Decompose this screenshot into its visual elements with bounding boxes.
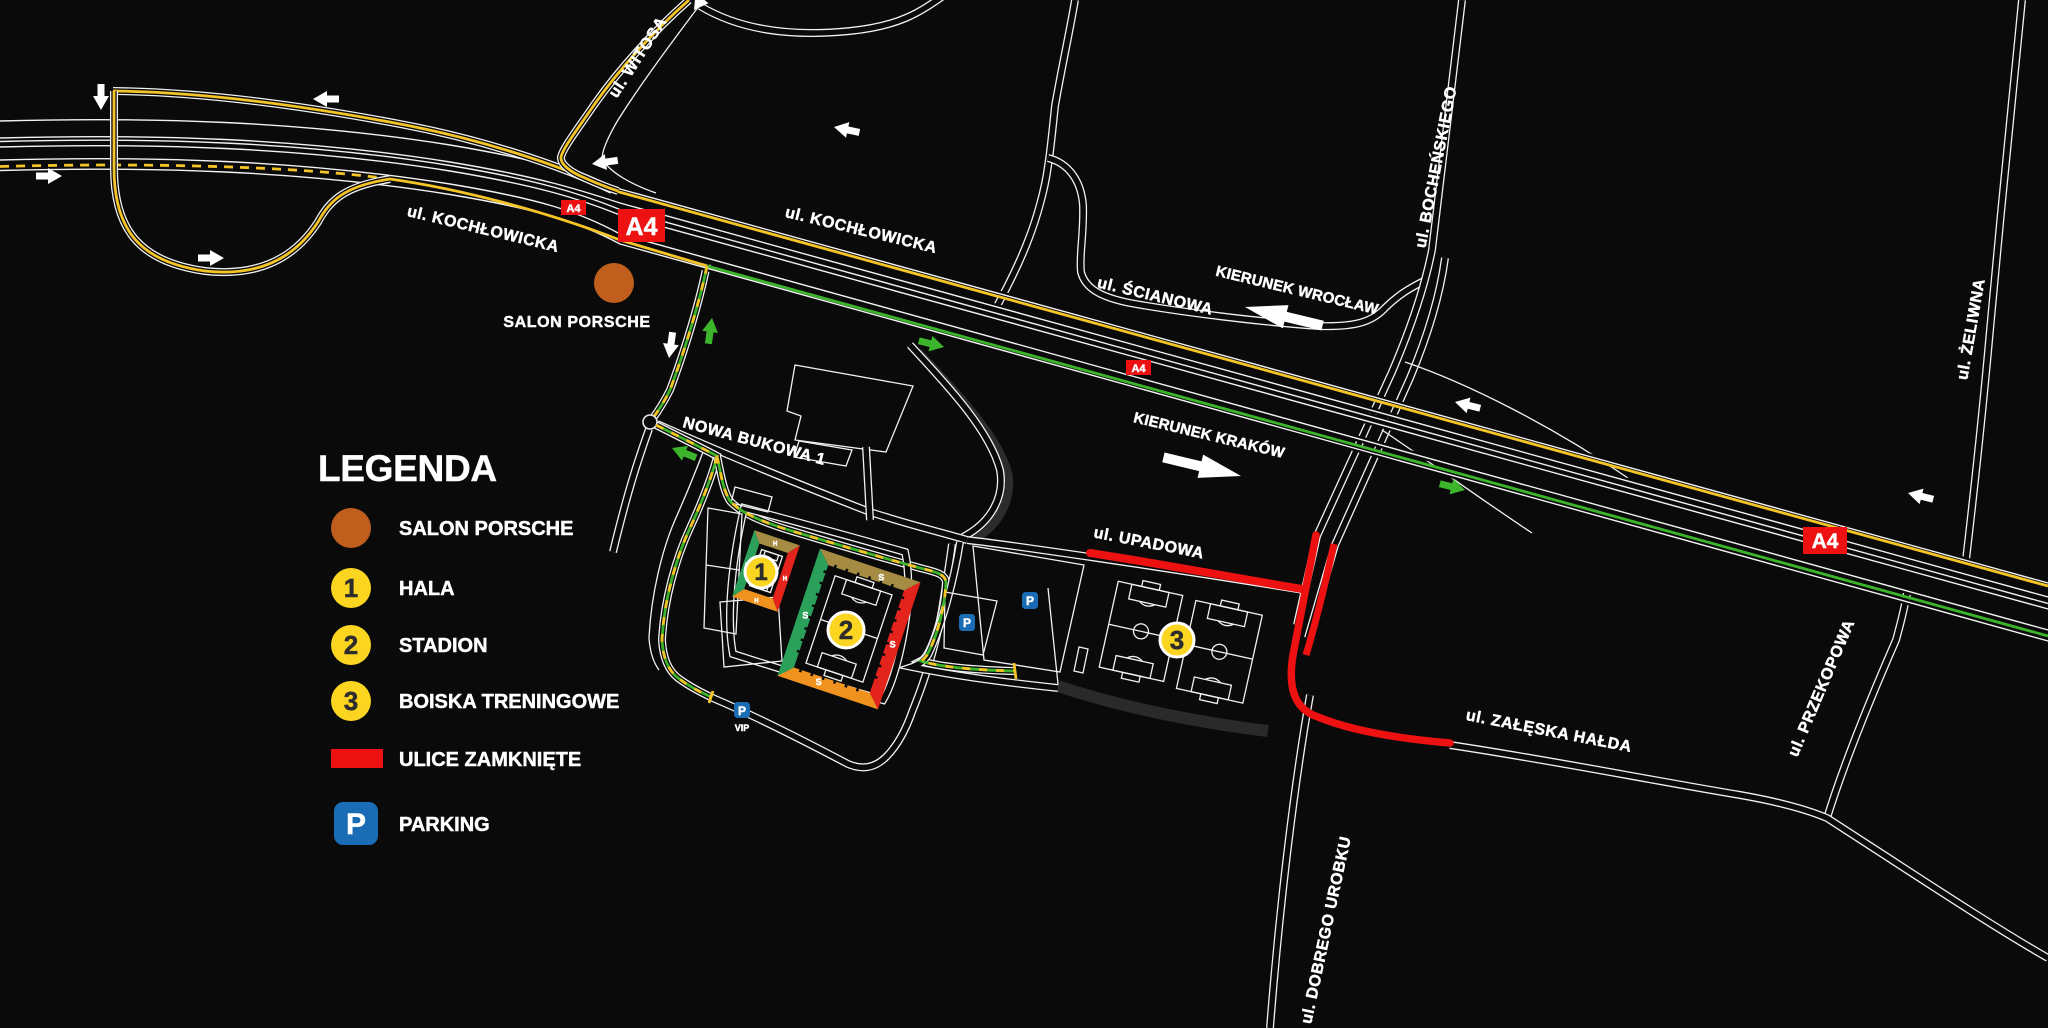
svg-text:ULICE ZAMKNIĘTE: ULICE ZAMKNIĘTE [399,749,581,771]
svg-text:1: 1 [344,573,358,603]
svg-text:A4: A4 [626,213,658,241]
svg-text:2: 2 [839,615,853,645]
svg-text:S: S [878,573,884,583]
svg-text:3: 3 [344,686,358,716]
svg-text:A4: A4 [1131,363,1146,375]
svg-text:LEGENDA: LEGENDA [318,448,497,489]
svg-text:S: S [802,610,808,620]
svg-text:H: H [783,576,787,582]
svg-text:H: H [754,598,758,604]
svg-text:STADION: STADION [399,635,488,657]
svg-text:A4: A4 [566,203,581,215]
svg-text:BOISKA TRENINGOWE: BOISKA TRENINGOWE [399,691,619,713]
svg-text:P: P [1026,594,1034,608]
svg-text:3: 3 [1170,625,1184,655]
svg-text:2: 2 [344,630,358,660]
svg-text:VIP: VIP [735,723,750,733]
svg-text:P: P [963,616,971,630]
svg-text:A4: A4 [1812,530,1839,553]
svg-text:H: H [773,541,777,547]
svg-text:SALON PORSCHE: SALON PORSCHE [399,518,573,540]
svg-text:SALON PORSCHE: SALON PORSCHE [503,314,650,331]
svg-text:PARKING: PARKING [399,814,490,836]
svg-text:P: P [738,704,746,718]
svg-text:S: S [890,640,896,650]
svg-text:P: P [346,808,366,841]
svg-text:HALA: HALA [399,578,455,600]
svg-text:1: 1 [754,559,767,586]
svg-text:S: S [816,677,822,687]
